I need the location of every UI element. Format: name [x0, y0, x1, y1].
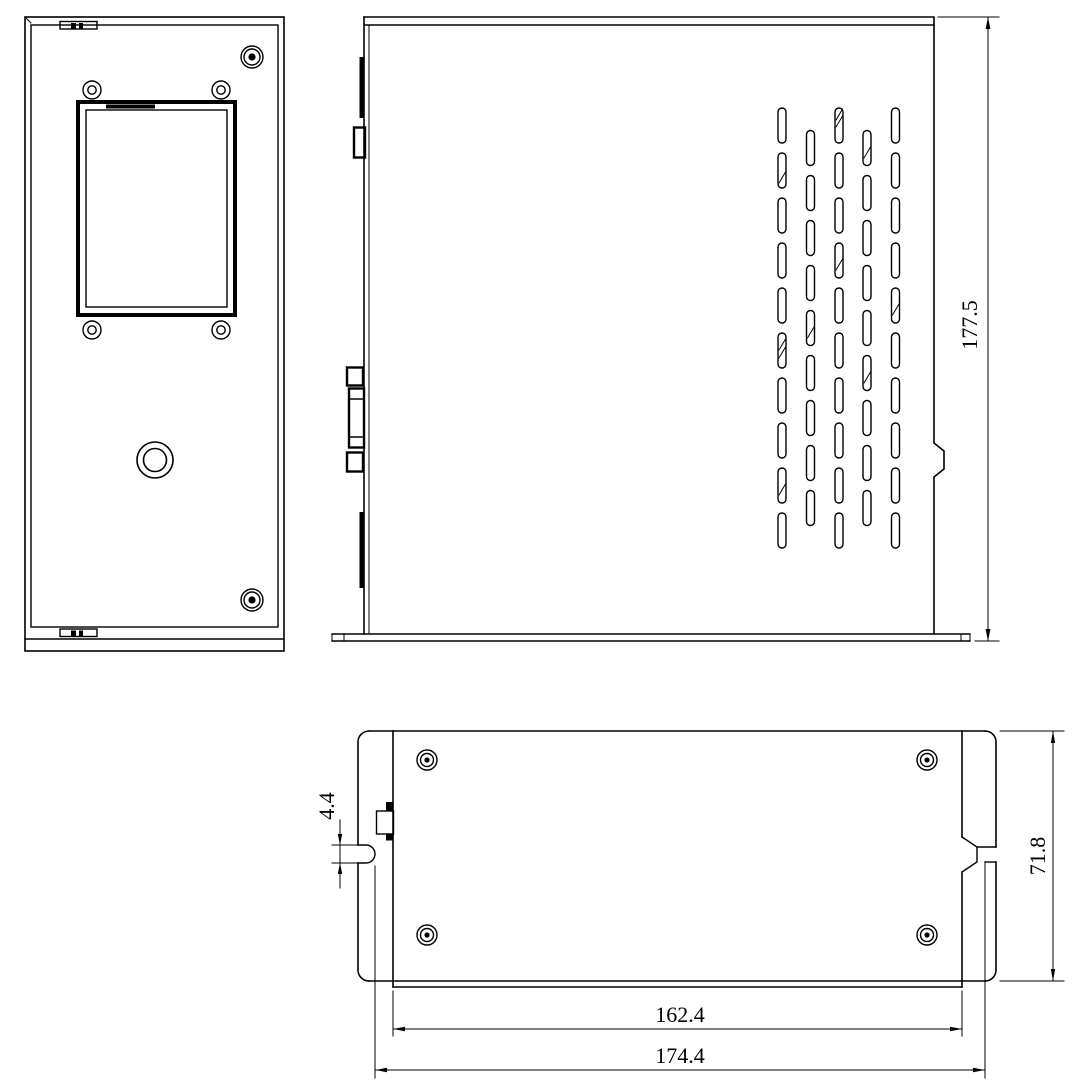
dimension-overall-width: 174.4 [375, 862, 985, 1078]
vent-slot [835, 153, 843, 188]
vent-slot [892, 378, 900, 413]
rear-dsub-connector [349, 389, 364, 448]
vent-hatch-marks [779, 109, 899, 495]
display-screw-top-right [212, 81, 230, 99]
vent-slot [807, 446, 815, 481]
bottom-connector-tab [377, 802, 394, 841]
vent-slot [807, 176, 815, 211]
vent-slot [807, 356, 815, 391]
vent-slot [892, 513, 900, 548]
front-view [25, 17, 284, 651]
display-window [78, 102, 235, 315]
vent-slot [778, 513, 786, 548]
vent-slot [807, 131, 815, 166]
dim-label-body-width: 162.4 [655, 1002, 705, 1027]
vent-slot [835, 423, 843, 458]
vent-slot [778, 378, 786, 413]
mount-slot-left [358, 845, 375, 863]
vent-slot [807, 491, 815, 526]
side-outline [364, 17, 944, 634]
engineering-drawing-canvas: 177.5 [0, 0, 1080, 1087]
case-screw-top-right [241, 46, 263, 68]
rear-connector-bar-lower [360, 512, 365, 588]
vent-slot [807, 221, 815, 256]
dim-label-mount-slot-height: 4.4 [314, 792, 339, 820]
rear-port-lower [347, 453, 363, 472]
vent-slot [863, 311, 871, 346]
dim-label-height: 177.5 [957, 300, 982, 350]
vent-slot [835, 198, 843, 233]
vent-slot [863, 266, 871, 301]
display-screw-bottom-right [212, 321, 230, 339]
vent-slot [835, 468, 843, 503]
vent-slot [835, 288, 843, 323]
mount-slot-right [977, 847, 996, 862]
dimension-height: 177.5 [938, 17, 999, 641]
vent-slot [892, 468, 900, 503]
vent-slot [807, 401, 815, 436]
bottom-screw-bottom-right [917, 925, 937, 945]
vent-slot [807, 266, 815, 301]
front-corner-chamfer [25, 17, 31, 23]
vent-slot [863, 401, 871, 436]
vent-grid [778, 108, 900, 548]
front-outer-case [25, 17, 284, 651]
vent-slot [835, 513, 843, 548]
body-edge-notch [962, 837, 977, 872]
vent-slot [778, 198, 786, 233]
vent-slot [835, 333, 843, 368]
vent-slot [892, 153, 900, 188]
vent-slot [863, 491, 871, 526]
side-view: 177.5 [332, 17, 999, 641]
display-top-notch [106, 105, 155, 109]
mount-flange-outline [358, 731, 996, 981]
vent-slot [863, 221, 871, 256]
display-screw-top-left [83, 81, 101, 99]
vent-slot [892, 423, 900, 458]
vent-slot [778, 243, 786, 278]
dimension-mount-slot-height: 4.4 [314, 792, 357, 888]
vent-slot [835, 108, 843, 143]
bottom-body [393, 731, 977, 987]
vent-slot [863, 176, 871, 211]
dim-label-depth: 71.8 [1025, 837, 1050, 876]
vent-slot [892, 198, 900, 233]
dimension-depth: 71.8 [1000, 731, 1064, 981]
vent-slot [778, 108, 786, 143]
rear-port-upper [347, 368, 363, 386]
front-inner-panel [31, 25, 278, 627]
vent-slot [863, 446, 871, 481]
bottom-screw-top-right [917, 750, 937, 770]
dim-label-overall-width: 174.4 [655, 1043, 705, 1068]
side-base-plate [332, 634, 970, 641]
case-screw-bottom-right [241, 589, 263, 611]
bottom-screw-top-left [417, 750, 437, 770]
vent-slot [892, 108, 900, 143]
bottom-screw-bottom-left [417, 925, 437, 945]
front-round-button [137, 442, 173, 478]
vent-slot [778, 423, 786, 458]
front-bottom-latch [60, 629, 97, 637]
vent-slot [892, 333, 900, 368]
bottom-view: 4.4 71.8 162.4 174.4 [314, 731, 1064, 1078]
rear-connector-bar-upper [360, 57, 365, 118]
vent-slot [778, 288, 786, 323]
display-screw-bottom-left [83, 321, 101, 339]
vent-slot [835, 378, 843, 413]
dimension-body-width: 162.4 [393, 991, 962, 1036]
drawing-page: 177.5 [0, 0, 1080, 1087]
vent-slot [892, 243, 900, 278]
